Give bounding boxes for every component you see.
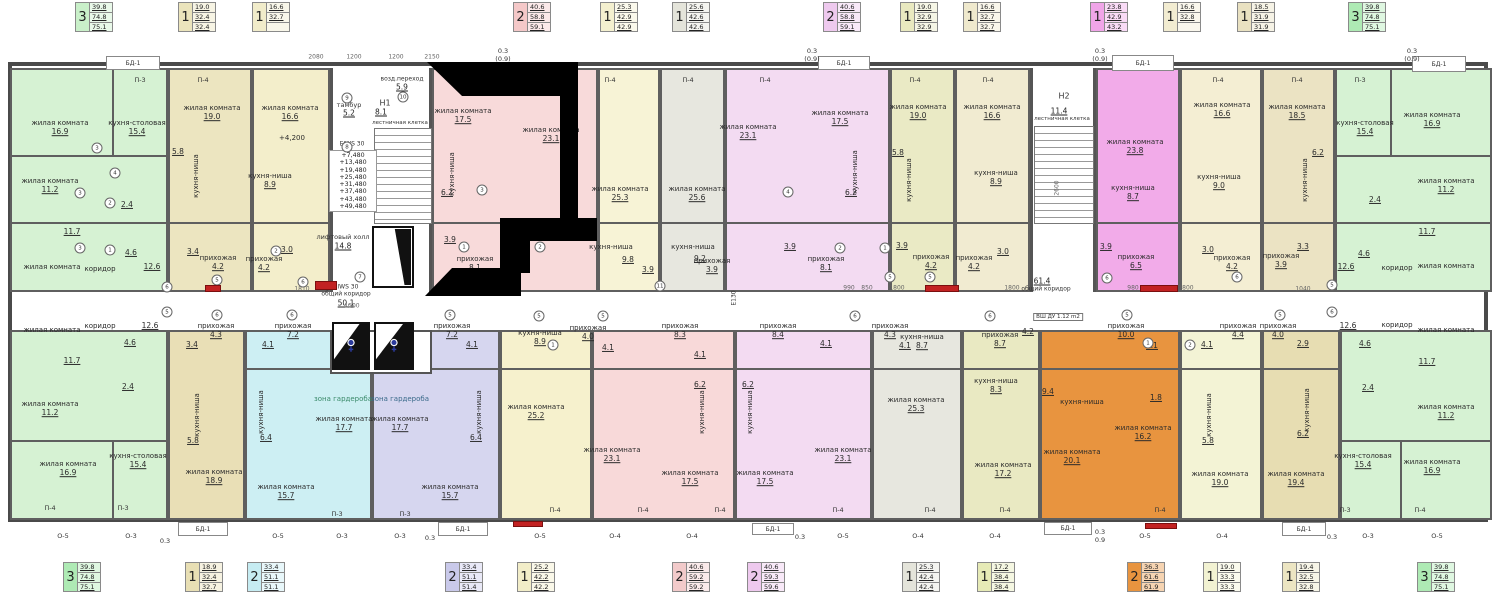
room-area: 15.7 [421,492,478,500]
axis-bubble: 6 [212,310,223,321]
window-tag: О-5 [272,532,284,540]
room-label: кухня-ниша [476,390,484,434]
room-label: жилая комната23.1 [814,447,871,463]
flat-area-value: 74.8 [90,13,112,23]
flat-area-value: 74.8 [78,573,100,583]
flat-area-value: 40.6 [762,563,784,573]
room-label: жилая комната11.2 [21,178,78,194]
room-name: кухня-ниша [193,154,201,198]
flat-area-value: 36.3 [1142,563,1164,573]
flat-badge[interactable]: 236.361.661.9 [1127,562,1165,592]
axis-bubble: 4 [783,187,794,198]
room-area: 17.5 [736,478,793,486]
room-name: жилая комната [1417,263,1474,271]
room-label: прихожая8.7 [982,332,1019,348]
dimension-label: 1800 [1178,285,1193,292]
room-label: жилая комната19.4 [1267,471,1324,487]
balcony-door-box: БД-1 [1282,522,1326,536]
room-label: жилая комната18.5 [1268,104,1325,120]
axis-bubble: 10 [398,92,409,103]
room-name: кухня-ниша [1302,158,1310,202]
flat-areas: 33.451.151.1 [261,563,284,591]
window-tag: О-5 [1139,532,1151,540]
room-area: 4.1 [602,344,614,352]
room-area: 2.9 [1297,340,1309,348]
window-tag: О-4 [1216,532,1228,540]
room-area: 4.6 [124,339,136,347]
room-label: 1.8 [1150,394,1162,402]
room-area: 18.5 [1268,112,1325,120]
axis-bubble: 1 [105,245,116,256]
axis-bubble: 9 [342,93,353,104]
room-name: зона гардероба [371,396,429,404]
room-name: кухня-ниша [1206,393,1214,437]
room-label: жилая комната15.7 [421,484,478,500]
flat-area-value: 43.2 [1105,23,1127,32]
elevator-cab [332,322,370,370]
flat-badge[interactable]: 118.531.931.9 [1237,2,1275,32]
flat-badge[interactable]: 339.874.875.1 [1417,562,1455,592]
interior-wall [1096,222,1492,224]
room-area: 3.0 [1202,246,1214,254]
room-area: 8.4 [760,331,797,339]
dimension-label: 2600 [1054,180,1061,195]
room-area: 11.2 [1417,186,1474,194]
room-area: 4.6 [1359,340,1371,348]
flat-area-value: 61.6 [1142,573,1164,583]
flat-area-value: 74.8 [1432,573,1454,583]
flat-badge[interactable]: 233.451.151.4 [445,562,483,592]
flat-badge[interactable]: 339.874.875.1 [75,2,113,32]
room-area: 19.0 [183,113,240,121]
flat-area-value: 32.9 [915,23,937,32]
dimension-label: 1800 [889,285,904,292]
flat-badge[interactable]: 119.032.932.9 [900,2,938,32]
room-label: 2.4 [122,383,134,391]
flat-badge[interactable]: 119.032.432.4 [178,2,216,32]
flat-badge[interactable]: 116.632.732.7 [963,2,1001,32]
axis-bubble: 5 [598,311,609,322]
room-label: 11.7 [64,357,81,365]
flat-badge[interactable]: 123.842.943.2 [1090,2,1128,32]
flat-area-value: 32.4 [193,13,215,23]
room-area: 11.2 [21,186,78,194]
flat-area-value: 25.3 [917,563,939,573]
room-label: 4.6 [124,339,136,347]
axis-bubble: 2 [271,246,282,257]
room-area: 6.2 [845,189,857,197]
room-area: 4.3 [198,331,235,339]
room-label: прихожая7.2 [275,323,312,339]
dimension-label: 1200 [388,54,403,61]
flat-badge[interactable]: 240.659.359.6 [747,562,785,592]
room-area: 15.4 [1334,461,1391,469]
window-tag: П-4 [909,76,920,84]
room-label: жилая комната11.2 [21,401,78,417]
flat-areas: 19.032.932.9 [914,3,937,31]
flat-badge[interactable]: 125.242.242.2 [517,562,555,592]
room-area: 4.0 [1260,331,1297,339]
room-area: 6.4 [470,434,482,442]
flat-rooms-count: 1 [1204,563,1217,591]
axis-bubble: 6 [1102,273,1113,284]
room-name: коридор [1381,322,1412,330]
room-label: кухня-ниша [1302,158,1310,202]
window-tag: О-4 [609,532,621,540]
room-label: жилая комната18.9 [185,469,242,485]
flat-area-value: 19.0 [193,3,215,13]
room-label: жилая комната17.7 [371,416,428,432]
axis-bubble: 3 [75,188,86,199]
room-label: 3.4 [186,341,198,349]
room-area: 10.0 [1108,331,1145,339]
window-tag: П-3 [1354,76,1365,84]
flat-area-value: 42.4 [917,583,939,592]
window-tag: О-4 [686,532,698,540]
flat-area-value: 75.1 [1432,583,1454,592]
room-area: 11.7 [64,357,81,365]
balcony-door-box: БД-1 [1412,56,1466,72]
elevation-value: +13,480 [330,159,376,166]
window-tag: О-3 [465,82,477,90]
staircase [1034,126,1094,224]
axis-bubble: 7 [355,272,366,283]
dimension-label: 990 [843,285,854,292]
room-label: 2.9 [1297,340,1309,348]
flat-badge[interactable]: 116.632.7 [252,2,290,32]
room-label: жилая комната11.2 [1417,404,1474,420]
room-area: 16.6 [1193,110,1250,118]
room-label: 6.2 [845,189,857,197]
room-label: коридор [84,266,115,274]
flat-badge[interactable]: 119.432.532.8 [1282,562,1320,592]
room-name: жилая комната [23,327,80,335]
interior-wall [10,440,168,442]
interior-wall [1400,440,1402,520]
room-area: 17.5 [811,118,868,126]
flat-area-value: 31.9 [1252,13,1274,23]
room-label: 6.2 [1312,149,1324,157]
room-area: 4.2 [200,263,237,271]
flat-areas: 36.361.661.9 [1141,563,1164,591]
flat-badge[interactable]: 233.451.151.1 [247,562,285,592]
room-label: жилая комната25.3 [887,397,944,413]
room-label: 11.7 [64,228,81,236]
apartment-green-bottom-left[interactable] [10,330,168,520]
elevator-cab [374,322,414,370]
apartment-khaki-bottom-right[interactable] [1262,330,1340,520]
axis-bubble: 6 [985,311,996,322]
flat-area-value: 16.6 [267,3,289,13]
window-tag: П-4 [549,506,560,514]
flat-badge[interactable]: 116.632.8 [1163,2,1201,32]
elevator-shaft [372,226,414,288]
axis-bubble: 5 [925,272,936,283]
flat-area-value: 59.2 [687,573,709,583]
axis-bubble: 3 [477,185,488,196]
room-label: прихожая4.0 [1260,323,1297,339]
flat-area-value: 39.8 [1432,563,1454,573]
room-label: 2.4 [1369,196,1381,204]
room-area: 4.6 [125,249,137,257]
flat-area-value: 38.4 [992,583,1014,592]
core-label: 14.8 [335,242,352,251]
flat-rooms-count: 1 [179,3,192,31]
room-area: 4.2 [956,263,993,271]
room-name: кухня-ниша [906,158,914,202]
flat-badge[interactable]: 240.658.859.1 [823,2,861,32]
room-label: 12.6 [1338,263,1355,271]
flat-area-value: 42.6 [687,13,709,23]
axis-bubble: 4 [110,168,121,179]
room-label: 4.1 [262,341,274,349]
axis-bubble: 2 [105,198,116,209]
corridor-label: E130 [731,290,738,305]
flat-rooms-count: 2 [446,563,459,591]
room-area: 25.6 [668,194,725,202]
room-label: кухня-столовая15.4 [109,453,166,469]
flat-badge[interactable]: 125.342.442.4 [902,562,940,592]
flat-areas: 25.342.442.4 [916,563,939,591]
apartment-pink-bottom[interactable] [592,330,735,520]
flat-rooms-count: 3 [76,3,89,31]
axis-bubble: 5 [162,307,173,318]
flat-area-value: 40.6 [528,3,550,13]
apartment-gray-bottom[interactable] [872,330,962,520]
room-label: коридор [1381,265,1412,273]
room-area: 3.9 [896,242,908,250]
room-label: жилая комната23.1 [522,127,579,143]
flat-areas: 40.658.859.1 [527,3,550,31]
flat-badge[interactable]: 339.874.875.1 [1348,2,1386,32]
window-tag: П-4 [1212,76,1223,84]
room-label: 2.4 [1362,384,1374,392]
room-label: кухня-ниша9.0 [1197,174,1241,190]
room-area: 19.0 [889,112,946,120]
flat-areas: 25.242.242.2 [531,563,554,591]
room-name: коридор [84,323,115,331]
flat-area-value: 39.8 [78,563,100,573]
flat-area-value: 32.5 [1297,573,1319,583]
apartment-green-bottom-right[interactable] [1340,330,1492,520]
flat-area-value: 39.8 [1363,3,1385,13]
elevation-value: +37,480 [330,188,376,195]
apartment-yellow-bottom[interactable] [500,330,592,520]
room-name: зона гардероба [314,396,372,404]
apartment-pale-bottom[interactable] [1180,330,1262,520]
window-tag: 0.3 [807,47,817,55]
flat-areas: 33.451.151.4 [459,563,482,591]
room-area: 17.2 [974,470,1031,478]
room-label: жилая комната20.1 [1043,449,1100,465]
window-tag: П-4 [197,76,208,84]
flat-badge[interactable]: 125.342.942.9 [600,2,638,32]
room-area: 7.2 [275,331,312,339]
flat-badge[interactable]: 240.659.259.2 [672,562,710,592]
flat-area-value: 32.4 [200,573,222,583]
fire-equipment-mark [513,521,543,527]
core-label: H2 [1058,92,1069,101]
flat-area-value: 74.8 [1363,13,1385,23]
flat-badge[interactable]: 240.658.859.1 [513,2,551,32]
flat-rooms-count: 3 [1418,563,1431,591]
room-label: жилая комната [1417,263,1474,271]
flat-area-value: 32.4 [193,23,215,32]
flat-badge[interactable]: 117.238.438.4 [977,562,1015,592]
room-area: 16.9 [1403,467,1460,475]
room-label: 3.3 [1297,243,1309,251]
room-label: жилая комната16.9 [31,120,88,136]
room-area: 11.2 [21,409,78,417]
window-tag: П-3 [399,510,410,518]
fire-equipment-mark [315,281,337,290]
flat-rooms-count: 1 [1283,563,1296,591]
axis-bubble: 8 [342,142,353,153]
dimension-label: 1040 [1295,286,1310,293]
room-area: 3.0 [281,246,293,254]
room-area: 11.7 [64,228,81,236]
room-label: 3.9 [1100,243,1112,251]
room-label: жилая комната23.8 [1106,139,1163,155]
elevation-value: +7,480 [330,152,376,159]
room-label: прихожая8.1 [457,256,494,272]
room-area: 6.2 [1297,430,1309,438]
room-label: 12.6 [1340,322,1357,330]
axis-bubble: 6 [287,310,298,321]
flat-badge[interactable]: 339.874.875.1 [63,562,101,592]
interior-wall [1335,155,1492,157]
flat-badge[interactable]: 119.033.333.3 [1203,562,1241,592]
window-tag: П-4 [982,76,993,84]
flat-areas: 17.238.438.4 [991,563,1014,591]
room-area: 16.6 [261,113,318,121]
flat-area-value: 59.3 [762,573,784,583]
interior-wall [432,222,1030,224]
flat-rooms-count: 1 [1238,3,1251,31]
window-tag: П-4 [604,76,615,84]
elevation-value: +43,480 [330,196,376,203]
room-label: прихожая3.9 [694,258,731,274]
window-tag: 0.3 [160,537,170,545]
flat-rooms-count: 1 [253,3,266,31]
corridor-label: ВШ ДУ 1.12 m2 [1033,313,1083,321]
flat-badge[interactable]: 125.642.642.6 [672,2,710,32]
room-area: 9.4 [1042,388,1054,396]
flat-rooms-count: 1 [518,563,531,591]
apartment-violet-bottom[interactable] [735,330,872,520]
room-label: прихожая10.0 [1108,323,1145,339]
room-area: 17.7 [371,424,428,432]
room-label: 6.4 [260,434,272,442]
window-tag: П-4 [832,506,843,514]
window-tag: П-3 [117,504,128,512]
room-area: 12.6 [144,263,161,271]
axis-bubble: 3 [75,243,86,254]
elevation-marks: +7,480+13,480+19,480+25,480+31,480+37,48… [329,150,377,212]
room-area: 23.1 [583,455,640,463]
flat-area-value: 39.8 [90,3,112,13]
room-label: кухня-ниша8.9 [248,173,292,189]
room-label: 2.4 [121,201,133,209]
room-label: кухня-ниша [747,390,755,434]
flat-area-value: 51.1 [262,573,284,583]
room-area: 15.4 [109,461,166,469]
room-area: 3.4 [187,248,199,256]
room-label: кухня-ниша [671,244,715,252]
flat-rooms-count: 2 [514,3,527,31]
room-area: 8.7 [900,342,944,350]
room-area: 12.6 [142,322,159,330]
flat-area-value: 75.1 [1363,23,1385,32]
core-label: 5.2 [343,109,355,118]
flat-area-value: 18.9 [200,563,222,573]
elevation-value: +19,480 [330,167,376,174]
flat-rooms-count: 2 [748,563,761,591]
balcony-door-box: БД-1 [1044,522,1092,535]
room-area: 4.1 [820,340,832,348]
room-area: 11.7 [1419,228,1436,236]
room-label: кухня-ниша8.9 [974,170,1018,186]
room-label: жилая комната19.0 [183,105,240,121]
room-area: 12.6 [1338,263,1355,271]
room-label: жилая комната [1417,327,1474,335]
flat-area-value: 16.6 [1178,3,1200,13]
flat-area-value: 32.7 [978,23,1000,32]
interior-wall [1390,68,1392,155]
flat-areas: 16.632.7 [266,3,289,31]
flat-area-value: 16.6 [978,3,1000,13]
apartment-yellowgreen-bottom[interactable] [962,330,1040,520]
room-label: жилая комната [23,264,80,272]
room-label: жилая комната17.5 [661,470,718,486]
room-label: прихожая4.2 [1214,255,1251,271]
room-area: 9.8 [622,256,634,264]
flat-areas: 19.032.432.4 [192,3,215,31]
room-label: кухня-ниша8.3 [974,378,1018,394]
apartment-khaki-bottom-left[interactable] [168,330,245,520]
room-label: 3.9 [896,242,908,250]
window-tag: П-4 [44,504,55,512]
flat-area-value: 25.2 [532,563,554,573]
room-label: жилая комната16.9 [1403,112,1460,128]
flat-area-value: 42.9 [1105,13,1127,23]
window-tag: О-4 [989,532,1001,540]
elevator-symbol-icon [345,338,357,354]
room-label: 4.6 [1359,340,1371,348]
axis-bubble: 5 [534,311,545,322]
balcony-door-box: БД-1 [106,56,160,70]
flat-area-value: 33.3 [1218,573,1240,583]
flat-area-value: 19.4 [1297,563,1319,573]
room-area: 1.8 [1150,394,1162,402]
flat-badge[interactable]: 118.932.432.7 [185,562,223,592]
flat-rooms-count: 1 [1164,3,1177,31]
room-area: 16.9 [31,128,88,136]
room-name: жилая комната [23,264,80,272]
floor-plan-page: 339.874.875.1119.032.432.4116.632.7240.6… [0,0,1500,597]
room-label: 4.6 [1358,250,1370,258]
room-label: кухня-ниша8.7 [900,334,944,350]
room-label: кухня-ниша [1060,399,1104,407]
window-tag: П-4 [637,506,648,514]
flat-area-value: 51.1 [460,573,482,583]
room-area: 6.2 [441,189,453,197]
flat-area-value: 32.9 [915,13,937,23]
flat-area-value: 32.7 [978,13,1000,23]
room-label: кухня-ниша [1304,388,1312,432]
room-name: кухня-ниша [671,244,715,252]
room-name: коридор [84,266,115,274]
